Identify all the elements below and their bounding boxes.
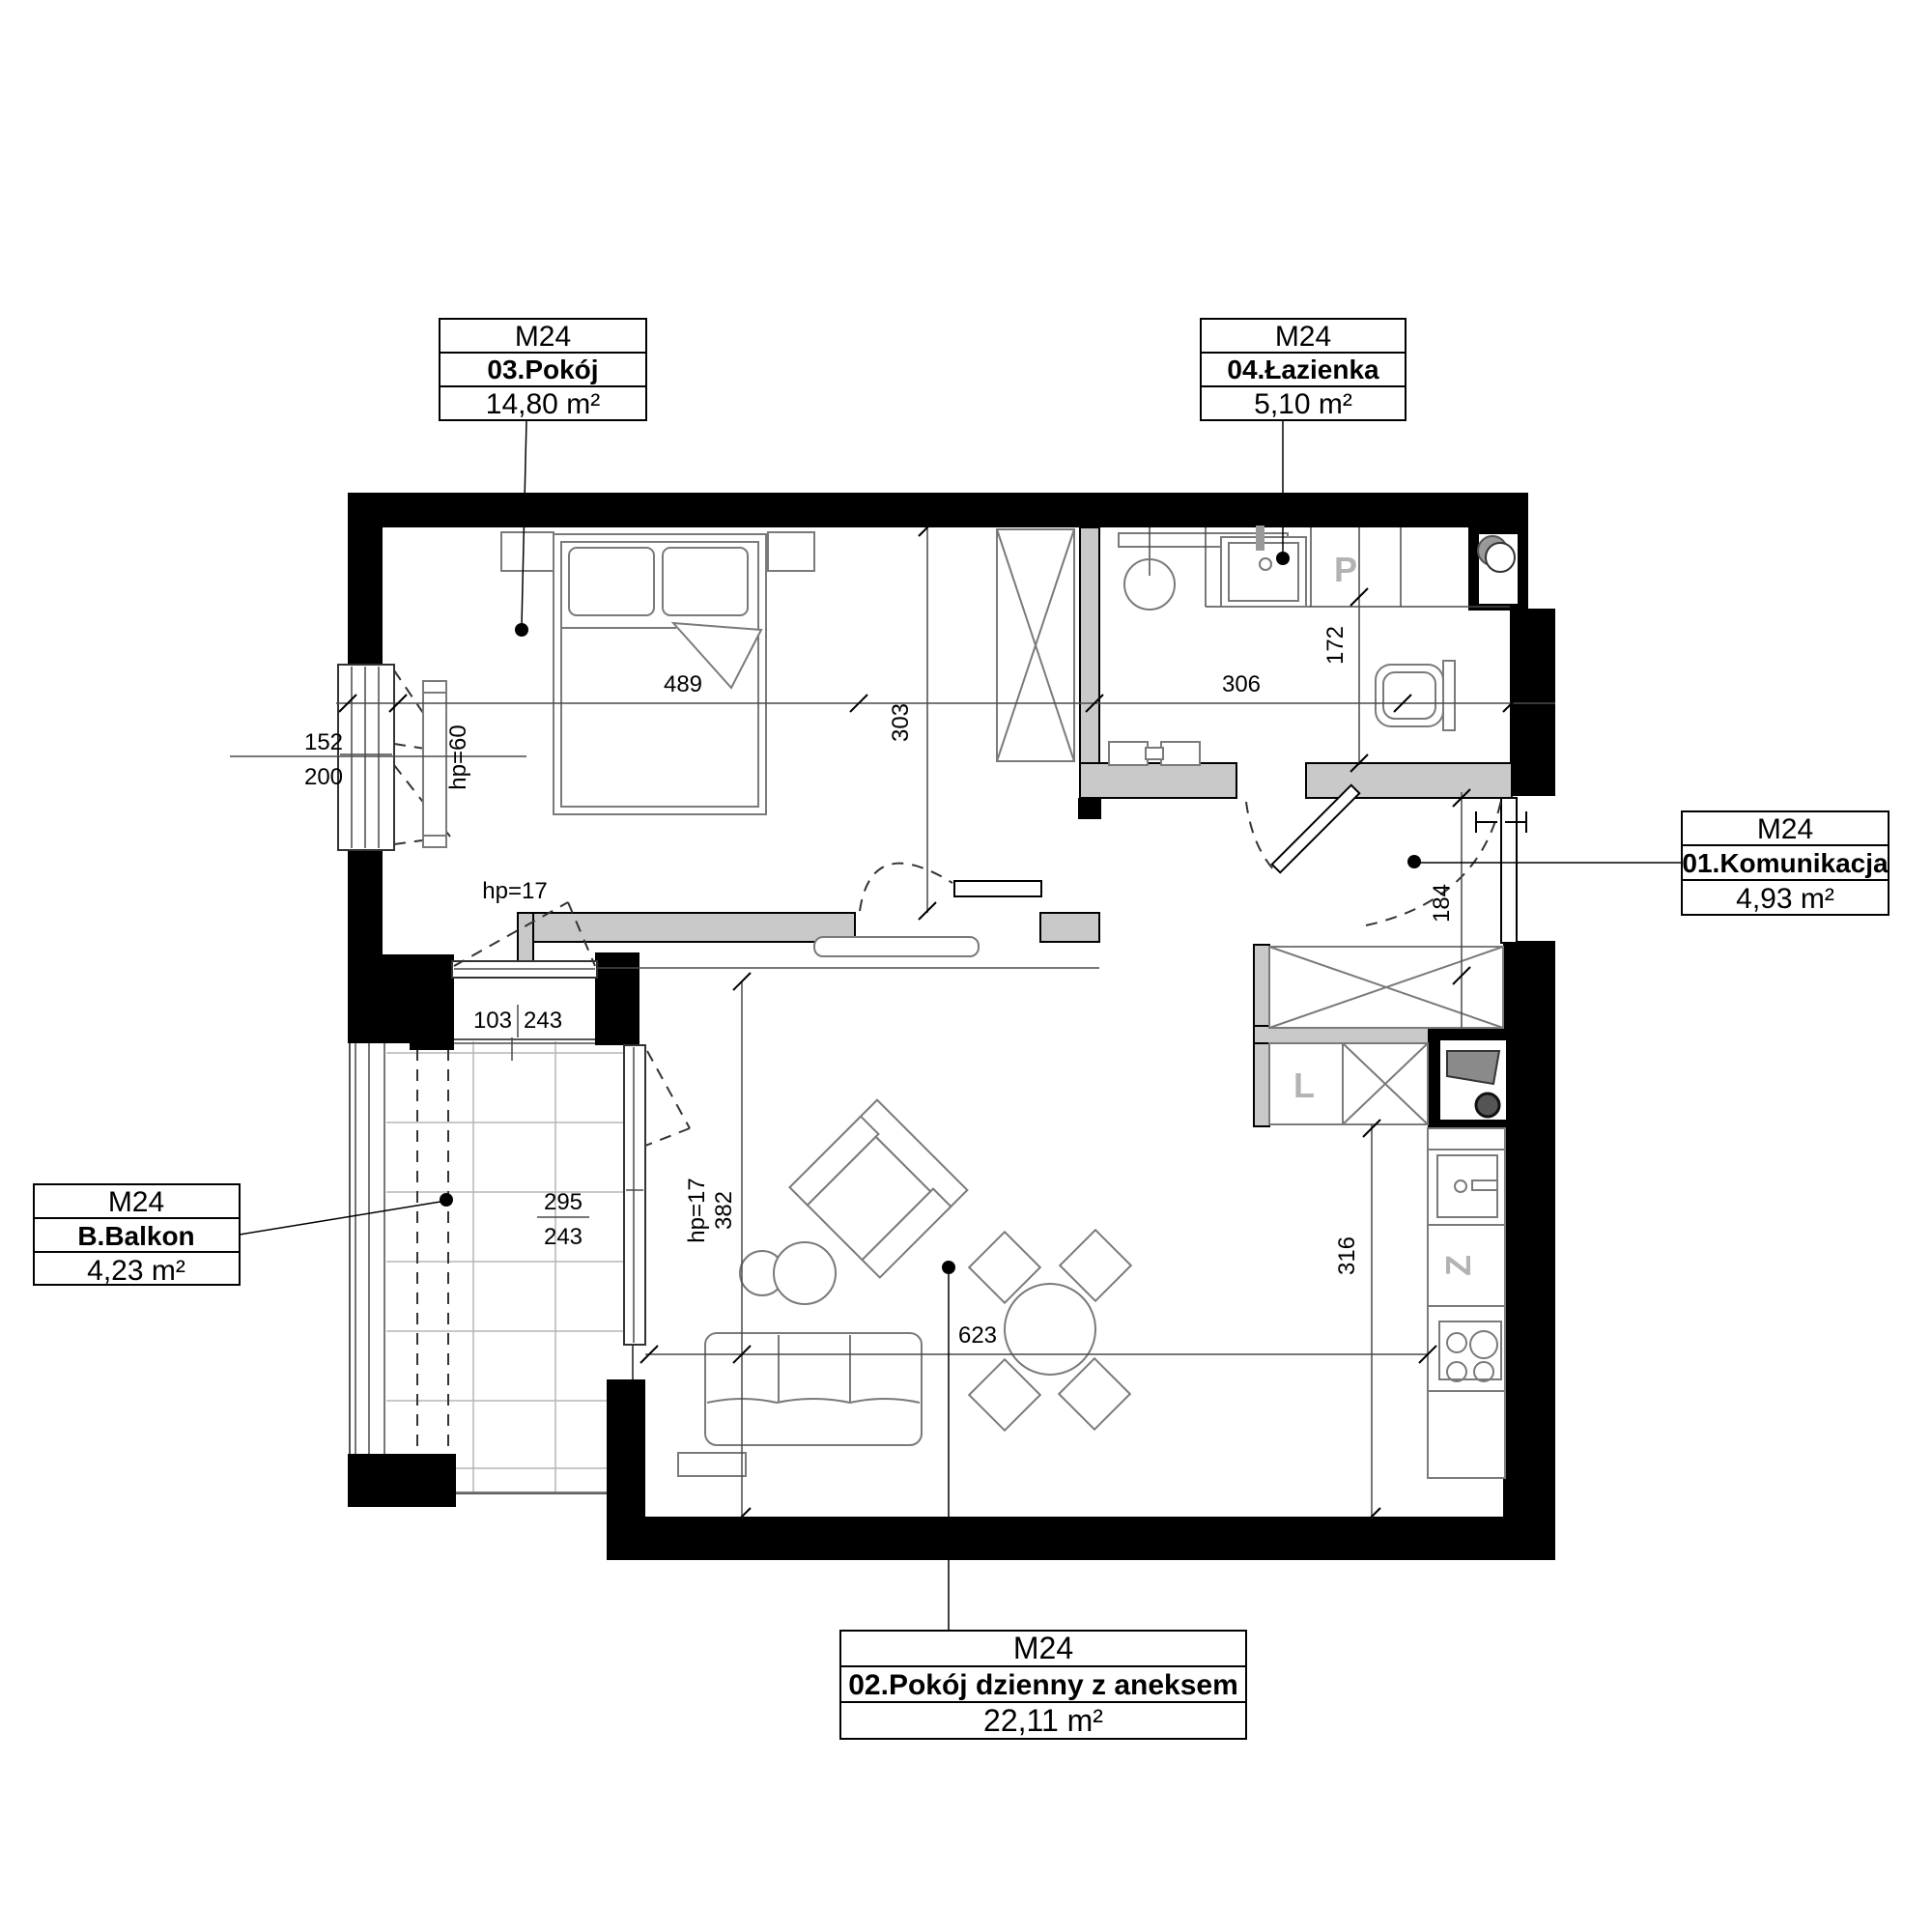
dim-bedroom-depth: 303 (888, 703, 914, 742)
coffee-table (774, 1242, 836, 1304)
bedroom-door-leaf (954, 881, 1041, 896)
wall-south (607, 1517, 1555, 1560)
wall-shower-south (1080, 763, 1236, 798)
balcony-door-glazing (624, 1045, 690, 1345)
wall-glazing-pier (607, 1379, 645, 1522)
shower-bench (1161, 742, 1200, 765)
washing-machine-letter: P (1334, 550, 1357, 589)
sill-height-balcony-door: hp=17 (684, 1178, 710, 1242)
dim-balcony-door-width: 295 (544, 1189, 582, 1215)
bedroom-door (860, 864, 1041, 911)
label-room-area: 4,93 m² (1736, 883, 1834, 915)
bed (554, 534, 766, 814)
entrance-door-leaf (1501, 798, 1517, 943)
balcony (350, 1037, 633, 1493)
wall-bathroom-south (1306, 763, 1512, 798)
dim-window-height: 200 (304, 764, 343, 790)
floor-plan-page: P (0, 0, 1932, 1932)
wall-kitchen-cap (1254, 1041, 1269, 1126)
dim-hallway-depth: 184 (1429, 884, 1455, 923)
sill-height-bedroom: hp=60 (445, 724, 471, 789)
label-pokoj: M24 03.Pokój 14,80 m² (440, 319, 646, 420)
wall-west-upper (348, 527, 383, 668)
label-room-area: 5,10 m² (1254, 388, 1352, 420)
dining-table (1005, 1284, 1095, 1375)
dim-bathroom-width: 306 (1222, 671, 1261, 697)
sill-height-low-window: hp=17 (482, 878, 547, 904)
label-room-name: 02.Pokój dzienny z aneksem (848, 1669, 1238, 1701)
shaft-niche (1478, 533, 1519, 605)
wall-shower-west-cap (1078, 798, 1101, 819)
dim-bedroom-width: 489 (664, 671, 702, 697)
label-unit: M24 (1757, 813, 1813, 845)
hallway-wardrobe (1269, 947, 1503, 1028)
bathroom-door (1246, 785, 1359, 873)
pillow (663, 548, 748, 615)
dim-living-width: 623 (958, 1322, 997, 1349)
label-lazienka: M24 04.Łazienka 5,10 m² (1201, 319, 1406, 420)
floor-plan-drawing: P (0, 0, 1932, 1932)
shower-bench (1109, 742, 1148, 765)
bedroom-wardrobe (997, 529, 1074, 761)
wall-closet-cap (1254, 945, 1269, 1030)
dim-bathroom-depth: 172 (1322, 626, 1349, 665)
niche-sink (1439, 1039, 1507, 1121)
faucet-icon (1256, 526, 1264, 551)
toilet-tank (1443, 661, 1455, 730)
nightstand (768, 532, 814, 571)
label-room-name: 04.Łazienka (1227, 355, 1379, 384)
label-unit: M24 (1013, 1631, 1073, 1665)
label-room-name: 03.Pokój (487, 355, 598, 384)
label-unit: M24 (1275, 321, 1331, 353)
label-room-area: 22,11 m² (983, 1703, 1103, 1738)
label-dzienny: M24 02.Pokój dzienny z aneksem 22,11 m² (840, 1631, 1246, 1739)
faucet-icon (1472, 1180, 1497, 1190)
label-room-area: 14,80 m² (486, 388, 600, 420)
kitchen: L Z (1269, 1039, 1507, 1478)
wall-bedroom-south-west (522, 913, 855, 942)
wall-balcony-corner (348, 954, 454, 1043)
dim-kitchen-run: 316 (1334, 1236, 1360, 1275)
dim-window-width: 152 (304, 729, 343, 755)
side-table (678, 1453, 746, 1476)
label-room-name: 01.Komunikacja (1682, 848, 1889, 878)
bathroom-sink (1221, 526, 1306, 607)
pillow (569, 548, 654, 615)
toilet (1376, 661, 1455, 730)
dishwasher-letter: Z (1438, 1255, 1478, 1276)
sofa (705, 1333, 922, 1445)
wall-east-upper (1510, 609, 1555, 796)
label-room-name: B.Balkon (77, 1221, 194, 1251)
label-unit: M24 (515, 321, 571, 353)
wall-bedroom-south-east (1040, 913, 1099, 942)
label-unit: M24 (108, 1186, 164, 1218)
drain-icon (1476, 1094, 1499, 1117)
radiator (423, 681, 446, 847)
label-balkon: M24 B.Balkon 4,23 m² (34, 1184, 240, 1287)
label-komunikacja: M24 01.Komunikacja 4,93 m² (1682, 811, 1889, 915)
dim-living-depth: 382 (711, 1191, 737, 1230)
sideboard (814, 937, 979, 956)
living-room (678, 1100, 1131, 1476)
bathroom: P (1109, 526, 1510, 765)
label-room-area: 4,23 m² (87, 1255, 185, 1287)
wall-shower-west (1080, 527, 1099, 800)
dim-balcony-window-height: 243 (524, 1008, 562, 1034)
hallway (860, 785, 1526, 1028)
wall-balcony-end (348, 1454, 456, 1507)
dim-balcony-window-width: 103 (473, 1008, 512, 1034)
fridge-letter: L (1293, 1065, 1315, 1105)
shower (1109, 527, 1206, 765)
nightstand (501, 532, 554, 571)
wall-window-pier (595, 952, 639, 1045)
dim-balcony-door-height: 243 (544, 1224, 582, 1250)
